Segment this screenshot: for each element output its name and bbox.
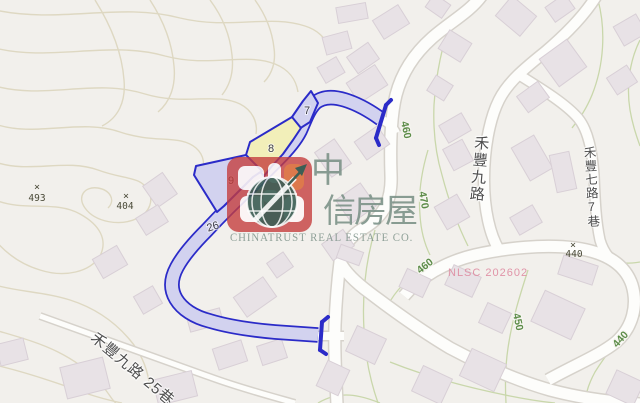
spot-marker-493: ×	[34, 182, 40, 193]
watermark-logo	[227, 157, 312, 232]
spot-value-404: 404	[116, 201, 133, 212]
map-canvas[interactable]: 7 8 9 26 460 470 460 450 440 × 493 × 404…	[0, 0, 640, 403]
parcel-label-8: 8	[268, 143, 274, 155]
watermark-tagline: CHINATRUST REAL ESTATE CO.	[230, 232, 413, 244]
nlsc-code-label: NLSC 202602	[448, 267, 528, 279]
parcel-label-7: 7	[304, 105, 310, 117]
watermark-cjk-line2: 信房屋	[323, 194, 416, 227]
spot-value-493: 493	[28, 193, 45, 204]
spot-value-440: 440	[565, 249, 582, 260]
watermark-cjk-line1: 中	[311, 154, 345, 188]
